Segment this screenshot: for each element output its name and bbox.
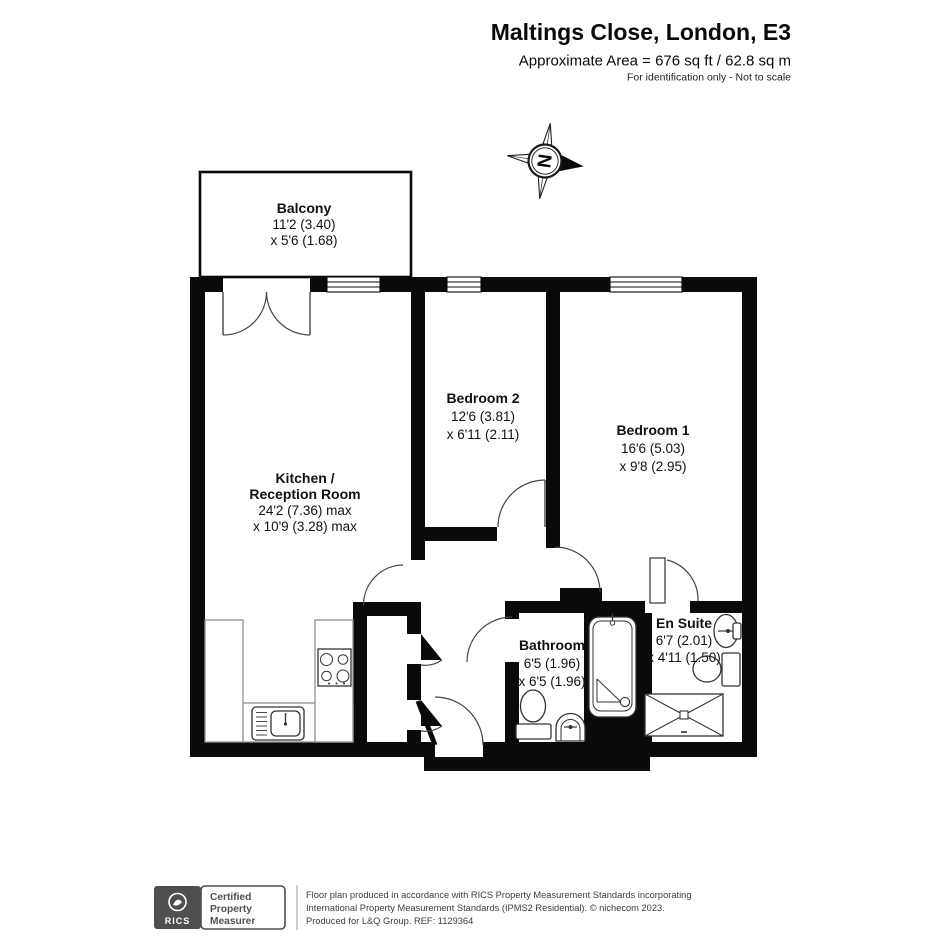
room-dim: 24'2 (7.36) max [258, 503, 352, 518]
room-label-balcony: Balcony 11'2 (3.40) x 5'6 (1.68) [270, 200, 337, 248]
wall-kitchen-counter-side [353, 616, 367, 742]
kitchen-fixtures [205, 620, 353, 742]
room-dim: 6'5 (1.96) [524, 656, 581, 671]
compass-north-letter: N [532, 153, 555, 170]
room-name: Kitchen / [275, 470, 334, 486]
wall-cupboard-a [407, 616, 421, 634]
floorplan-page: Maltings Close, London, E3 Approximate A… [0, 0, 945, 945]
approximate-area: Approximate Area = 676 sq ft / 62.8 sq m [519, 53, 791, 70]
wall-top-pier-mid [310, 277, 327, 292]
wall-bathroom-top [505, 601, 645, 613]
hall-cupboard-doors [421, 634, 442, 731]
rics-logo: RICS [154, 886, 201, 929]
cert-line: Certified [210, 892, 251, 903]
room-dim: x 10'9 (3.28) max [253, 519, 357, 534]
room-label-bathroom: Bathroom 6'5 (1.96) x 6'5 (1.96) [518, 637, 585, 689]
wall-bedroom2-bottom [411, 527, 497, 541]
wall-bedroom1-bottom [560, 588, 602, 601]
room-dim: 16'6 (5.03) [621, 441, 685, 456]
ensuite-door [650, 558, 698, 603]
room-dim: x 5'6 (1.68) [270, 233, 337, 248]
room-name: En Suite [656, 615, 712, 631]
basin-icon [556, 714, 585, 742]
room-name: Bedroom 2 [446, 390, 519, 406]
room-dim: 6'7 (2.01) [656, 633, 713, 648]
page-title: Maltings Close, London, E3 [491, 19, 791, 45]
room-name: Bathroom [519, 637, 585, 653]
room-dim: x 9'8 (2.95) [619, 459, 686, 474]
entry-step-wall [424, 757, 650, 771]
room-name: Reception Room [249, 486, 360, 502]
wall-top-seg [380, 277, 447, 292]
ensuite-basin-icon [714, 615, 741, 648]
balcony-french-doors [223, 292, 310, 335]
kitchen-door [364, 565, 404, 605]
room-label-kitchen: Kitchen / Reception Room 24'2 (7.36) max… [249, 470, 360, 534]
footer-disclaimer: Floor plan produced in accordance with R… [306, 890, 692, 926]
room-dim: x 6'11 (2.11) [447, 427, 520, 442]
room-dim: 11'2 (3.40) [272, 217, 335, 232]
room-dim: 12'6 (3.81) [451, 409, 515, 424]
wall-kitchen-bedroom2 [411, 292, 425, 560]
window-bedroom1 [610, 277, 682, 292]
wall-top-seg [481, 277, 610, 292]
wall-cupboard-c [407, 730, 421, 742]
bathtub-icon [589, 613, 636, 717]
room-dim: x 4'11 (1.50) [647, 650, 721, 665]
hob-icon [318, 649, 351, 686]
window-bedroom2 [447, 277, 481, 292]
disclaimer-line: Produced for L&Q Group. REF: 1129364 [306, 916, 473, 926]
kitchen-sink-icon [252, 707, 304, 740]
identification-note: For identification only - Not to scale [627, 72, 791, 84]
rics-wordmark: RICS [165, 916, 191, 926]
wall-bottom-left [190, 742, 435, 757]
wall-left [190, 277, 205, 757]
certified-measurer-badge: Certified Property Measurer [201, 886, 285, 929]
room-label-bedroom2: Bedroom 2 12'6 (3.81) x 6'11 (2.11) [446, 390, 519, 442]
room-name: Bedroom 1 [616, 422, 689, 438]
footer: RICS Certified Property Measurer Floor p… [154, 885, 692, 930]
wall-ensuite-top [690, 601, 742, 613]
shower-icon [645, 694, 723, 736]
kitchen-counter-left [205, 620, 243, 742]
bedroom2-door [498, 480, 545, 527]
disclaimer-line: Floor plan produced in accordance with R… [306, 890, 692, 900]
wall-bottom-right [483, 742, 757, 757]
room-label-ensuite: En Suite 6'7 (2.01) x 4'11 (1.50) [647, 615, 721, 665]
wall-bedroom2-bedroom1 [546, 292, 560, 548]
header: Maltings Close, London, E3 Approximate A… [491, 19, 791, 84]
wall-bathroom-left-upper [505, 613, 519, 619]
wall-right [742, 277, 757, 757]
room-dim: x 6'5 (1.96) [518, 674, 585, 689]
room-label-bedroom1: Bedroom 1 16'6 (5.03) x 9'8 (2.95) [616, 422, 689, 474]
cert-line: Measurer [210, 916, 255, 927]
bedroom1-door [555, 547, 600, 592]
floorplan-canvas: Maltings Close, London, E3 Approximate A… [0, 0, 945, 945]
toilet-icon [516, 690, 551, 739]
bathroom-door [467, 617, 512, 662]
compass-rose-icon: N [502, 118, 589, 204]
wall-cupboard-b [407, 664, 421, 700]
cert-line: Property [210, 904, 252, 915]
room-name: Balcony [277, 200, 332, 216]
window-balcony [327, 277, 380, 292]
disclaimer-line: International Property Measurement Stand… [306, 903, 665, 913]
